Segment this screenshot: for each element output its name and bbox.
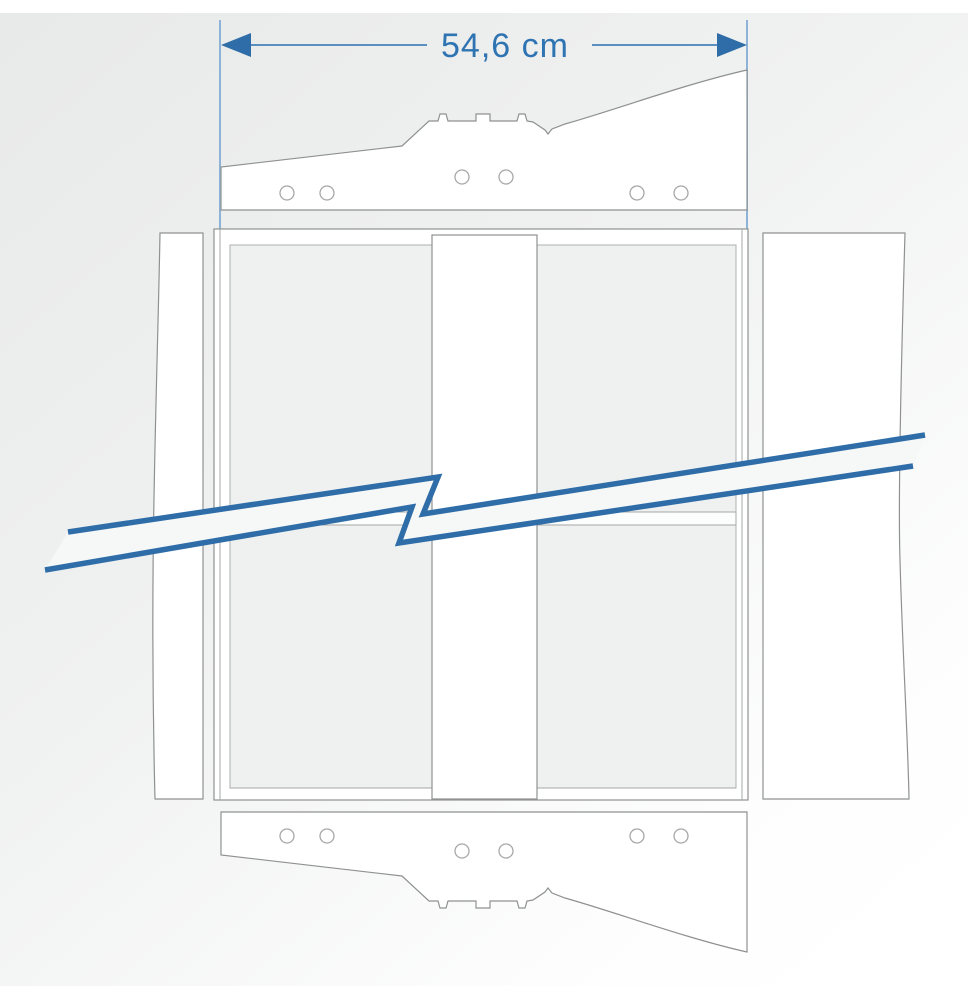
- drill-hole: [630, 829, 644, 843]
- drill-hole: [455, 844, 469, 858]
- right-side-panel: [763, 233, 909, 799]
- drill-hole: [499, 844, 513, 858]
- drill-hole: [455, 170, 469, 184]
- assembly-drawing: 54,6 cm: [0, 0, 968, 1000]
- drill-hole: [674, 829, 688, 843]
- drill-hole: [320, 186, 334, 200]
- drill-hole: [320, 829, 334, 843]
- technical-drawing-page: 54,6 cm: [0, 0, 968, 1000]
- drill-hole: [674, 186, 688, 200]
- drill-hole: [499, 170, 513, 184]
- drill-hole: [280, 829, 294, 843]
- dimension-label: 54,6 cm: [441, 27, 569, 65]
- drill-hole: [280, 186, 294, 200]
- drill-hole: [630, 186, 644, 200]
